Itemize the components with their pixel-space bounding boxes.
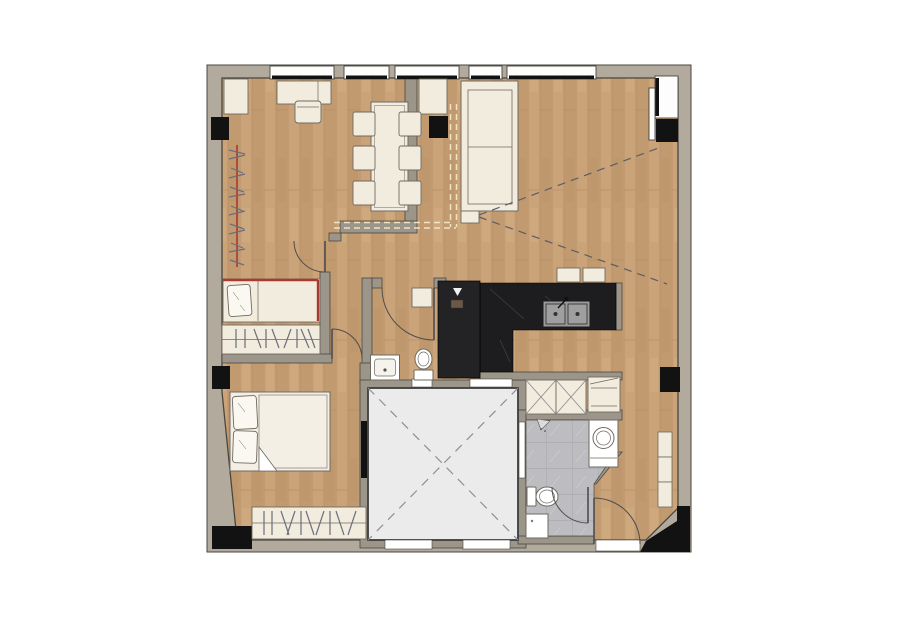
floor-plan-drawing [0,0,900,636]
toilet-wc [414,349,433,380]
curtain-bar-1 [272,76,332,80]
dining-chair [353,181,375,205]
wall-bedroom-north [222,354,332,363]
column-top-middle [429,116,448,138]
elevator-core [361,379,525,549]
wall-shelf-3 [658,482,672,507]
pillow [232,431,257,464]
riser-panel [361,421,367,478]
shower-stall [438,281,480,378]
curtain-bar-4 [471,76,500,80]
core-panel-east [519,422,525,478]
desk-chair [295,101,321,123]
floor-plan-canvas [0,0,900,636]
core-panel-north-2 [470,379,512,387]
entry-hall [658,432,672,507]
wall-study-east-lower [320,272,330,356]
wall-tv [649,88,655,140]
curtain-bar-3 [397,76,457,80]
dining-chair [399,112,421,136]
wall-stub [329,233,341,241]
shower-control [451,300,463,308]
column-left-mid [212,366,230,389]
sideboard [419,79,447,114]
column-right-top [656,119,678,142]
bath-cabinet [526,514,548,538]
wall-kitchen-end [616,283,622,330]
wall-shelf [412,288,432,307]
core-panel-south-1 [385,540,432,549]
wall-wc-north-jamb-left [372,278,382,288]
side-table [461,211,479,223]
dining-chair [353,146,375,170]
dining-chair [399,181,421,205]
appliance-unit [588,377,620,412]
washing-machine [589,420,618,467]
curtain-bar-5 [509,76,594,80]
curtain-bar-2 [346,76,387,80]
column-right-mid [660,367,680,392]
bar-stool [583,268,605,282]
corner-cabinet [224,79,248,114]
bar-stool [557,268,580,282]
dining-chair [353,112,375,136]
column-bottom-left [212,526,252,549]
sofa [461,81,518,211]
pillow [232,395,258,429]
dining-chair [399,146,421,170]
wall-shelf-2 [658,457,672,482]
wall-shelf-1 [658,432,672,457]
core-panel-south-2 [463,540,510,549]
column-left-top [211,117,229,140]
pillow [227,284,252,317]
curtain-bar-right [656,78,660,116]
